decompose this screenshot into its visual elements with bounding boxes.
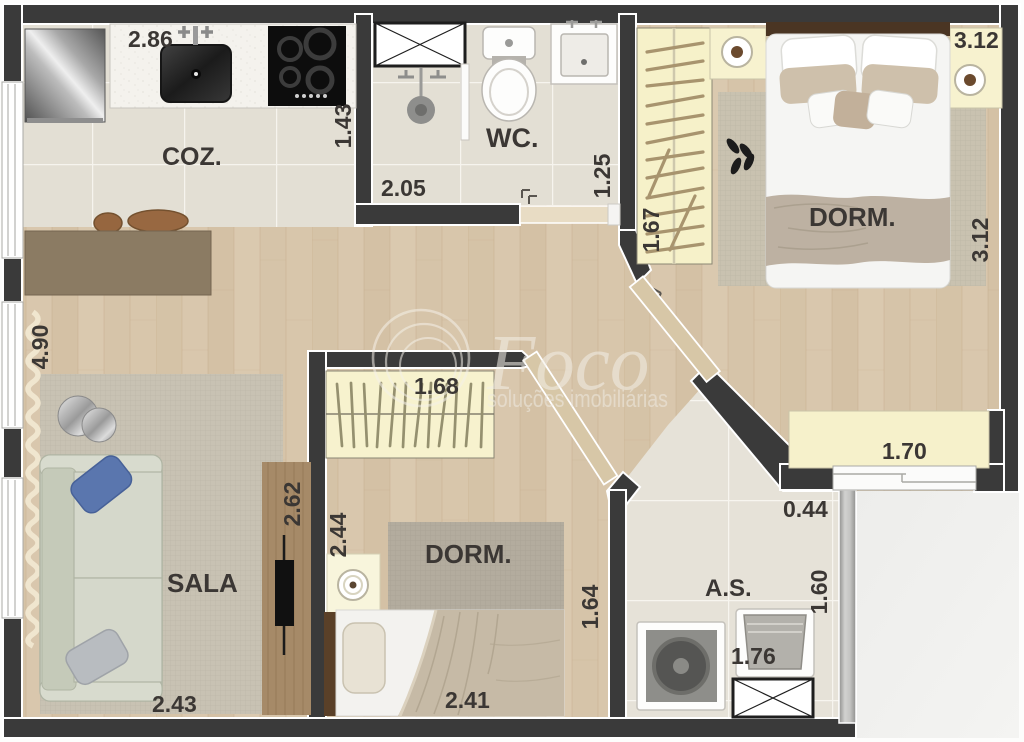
svg-text:3.12: 3.12 bbox=[967, 218, 993, 263]
svg-text:1.25: 1.25 bbox=[589, 153, 615, 198]
svg-text:1.67: 1.67 bbox=[638, 208, 664, 253]
svg-text:2.05: 2.05 bbox=[381, 175, 426, 201]
svg-text:DORM.: DORM. bbox=[425, 539, 512, 569]
svg-text:3.12: 3.12 bbox=[954, 27, 999, 53]
svg-text:0.44: 0.44 bbox=[783, 496, 828, 522]
svg-text:1.43: 1.43 bbox=[330, 104, 356, 149]
svg-text:1.64: 1.64 bbox=[577, 584, 603, 629]
svg-text:2.44: 2.44 bbox=[325, 512, 351, 557]
svg-text:2.62: 2.62 bbox=[279, 482, 305, 527]
svg-text:DORM.: DORM. bbox=[809, 202, 896, 232]
svg-text:2.43: 2.43 bbox=[152, 691, 197, 717]
svg-text:2.41: 2.41 bbox=[445, 687, 490, 713]
svg-text:COZ.: COZ. bbox=[162, 143, 222, 171]
svg-text:SALA: SALA bbox=[167, 568, 238, 598]
svg-text:1.60: 1.60 bbox=[806, 570, 832, 615]
svg-text:1.68: 1.68 bbox=[414, 373, 459, 399]
svg-text:soluções imobiliárias: soluções imobiliárias bbox=[487, 386, 668, 413]
svg-text:A.S.: A.S. bbox=[705, 575, 752, 602]
svg-text:WC.: WC. bbox=[486, 123, 538, 153]
svg-text:4.90: 4.90 bbox=[27, 325, 53, 370]
svg-text:1.70: 1.70 bbox=[882, 438, 927, 464]
svg-text:2.86: 2.86 bbox=[128, 26, 173, 52]
svg-text:1.76: 1.76 bbox=[731, 643, 776, 669]
